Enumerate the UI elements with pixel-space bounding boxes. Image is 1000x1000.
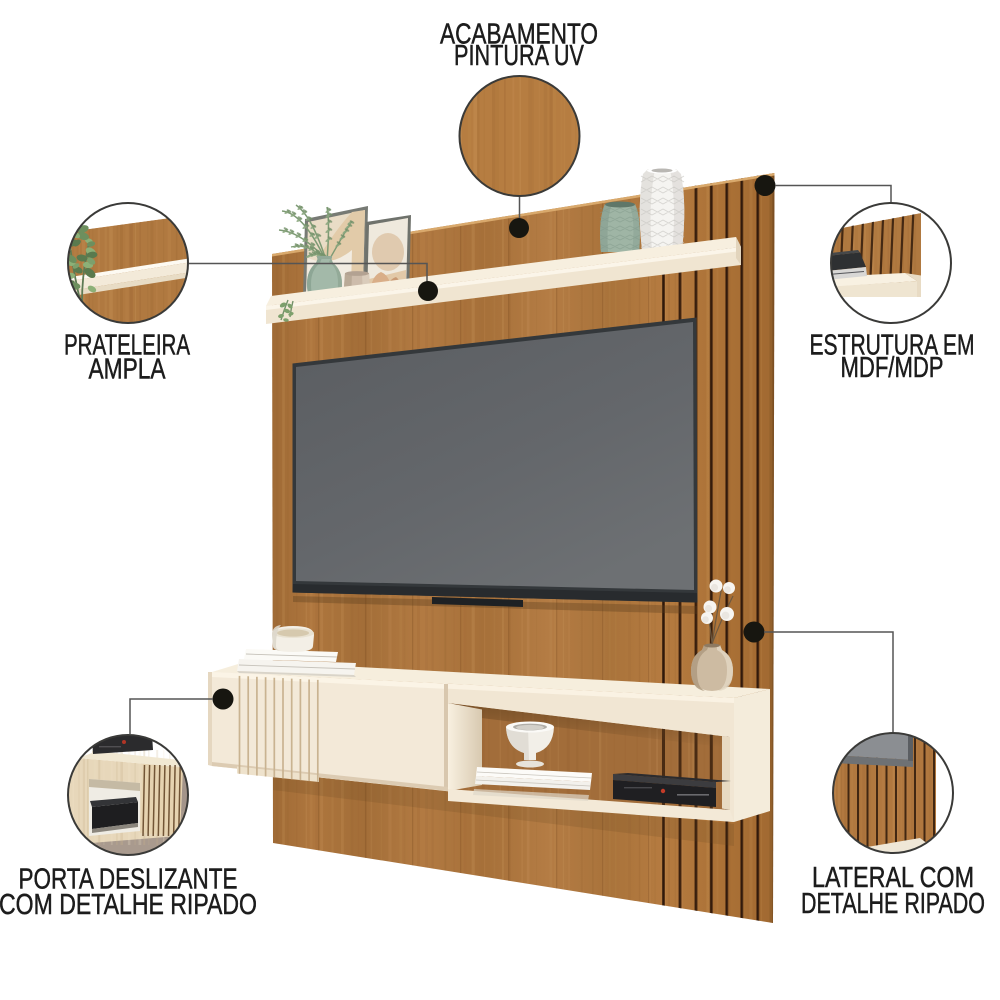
svg-text:DETALHE RIPADO: DETALHE RIPADO [801, 888, 985, 920]
svg-text:PINTURA UV: PINTURA UV [454, 40, 584, 72]
svg-text:AMPLA: AMPLA [89, 354, 167, 386]
svg-text:MDF/MDP: MDF/MDP [841, 352, 944, 384]
svg-text:COM DETALHE RIPADO: COM DETALHE RIPADO [0, 889, 257, 921]
